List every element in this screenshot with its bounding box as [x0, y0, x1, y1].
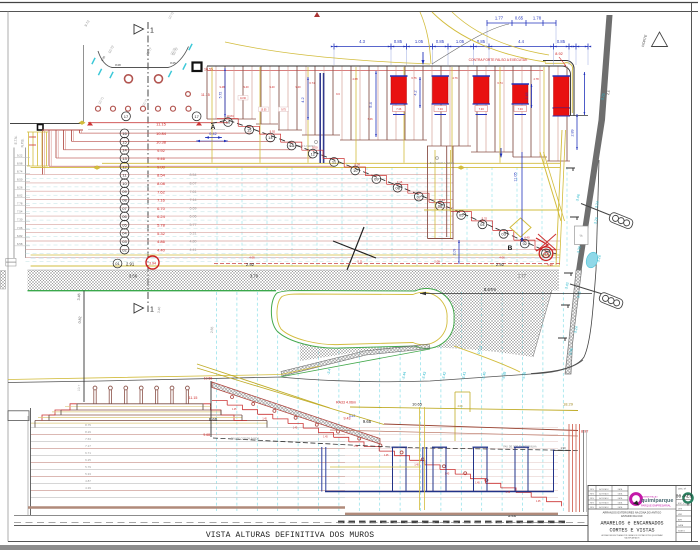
svg-text:07: 07 — [122, 206, 127, 211]
svg-text:CONTRA FORTE FALSO A EXECUTAR: CONTRA FORTE FALSO A EXECUTAR — [469, 58, 528, 62]
svg-text:4.86: 4.86 — [157, 239, 166, 244]
svg-text:7.30: 7.30 — [17, 218, 23, 222]
svg-text:8.54: 8.54 — [157, 173, 166, 178]
svg-text:03: 03 — [501, 232, 506, 237]
svg-text:ALTERADO: ALTERADO — [599, 501, 609, 504]
svg-text:8.02: 8.02 — [17, 194, 23, 198]
svg-text:01: 01 — [115, 261, 120, 266]
svg-text:10: 10 — [353, 168, 358, 173]
svg-text:7.61: 7.61 — [190, 190, 197, 194]
svg-text:02: 02 — [122, 247, 127, 252]
svg-text:1.45: 1.45 — [414, 464, 419, 466]
svg-text:2.48: 2.48 — [525, 93, 529, 100]
svg-text:18.29: 18.29 — [563, 402, 574, 407]
svg-text:9.65: 9.65 — [209, 417, 218, 422]
svg-text:3.46: 3.46 — [157, 306, 162, 313]
svg-text:REV: REV — [590, 489, 595, 491]
svg-text:DATA: DATA — [618, 492, 623, 495]
svg-text:5.72: 5.72 — [219, 92, 223, 99]
svg-text:8.50: 8.50 — [17, 177, 23, 181]
svg-text:6.82: 6.82 — [17, 234, 23, 238]
svg-text:1.45: 1.45 — [384, 455, 389, 457]
svg-text:4.68: 4.68 — [352, 77, 358, 81]
svg-text:4.05: 4.05 — [249, 256, 255, 260]
svg-text:8.08: 8.08 — [115, 63, 121, 67]
svg-text:6.58: 6.58 — [17, 242, 23, 246]
svg-text:1.45: 1.45 — [506, 492, 511, 494]
svg-text:8.26: 8.26 — [17, 186, 23, 190]
svg-text:9.6: 9.6 — [336, 92, 340, 96]
svg-text:ALTERADO: ALTERADO — [599, 492, 609, 495]
svg-text:A: A — [211, 124, 216, 131]
svg-text:SUBST.: SUBST. — [678, 531, 685, 533]
svg-text:4.76: 4.76 — [452, 76, 458, 80]
svg-text:7.46: 7.46 — [367, 117, 373, 121]
svg-text:6.24: 6.24 — [157, 214, 166, 219]
svg-text:1.05: 1.05 — [415, 39, 424, 44]
svg-text:6.71: 6.71 — [85, 451, 91, 455]
svg-text:9.68: 9.68 — [203, 433, 210, 437]
svg-text:12: 12 — [122, 164, 127, 169]
svg-text:13: 13 — [289, 143, 294, 148]
svg-text:VISTA ALTURAS DEFINITIVA DOS M: VISTA ALTURAS DEFINITIVA DOS MUROS — [206, 531, 374, 540]
svg-text:1.45: 1.45 — [536, 501, 541, 503]
svg-text:9.92: 9.92 — [157, 148, 166, 153]
svg-text:B: B — [687, 503, 689, 507]
svg-text:ALTERADO: ALTERADO — [599, 506, 609, 509]
svg-text:06: 06 — [122, 214, 127, 219]
svg-text:03: 03 — [122, 239, 127, 244]
svg-text:9.40: 9.40 — [295, 85, 301, 89]
svg-text:10: 10 — [122, 181, 127, 186]
svg-text:E.T.N.: E.T.N. — [14, 136, 18, 145]
svg-text:0.85: 0.85 — [557, 39, 566, 44]
svg-text:1.78: 1.78 — [533, 16, 542, 21]
svg-text:8.75: 8.75 — [85, 423, 91, 427]
svg-text:10.60: 10.60 — [240, 98, 246, 100]
svg-text:DES. Nº: DES. Nº — [678, 488, 686, 491]
svg-text:5.11: 5.11 — [357, 260, 363, 264]
svg-text:9.40: 9.40 — [243, 85, 249, 89]
svg-text:ALTERADO: ALTERADO — [599, 488, 609, 491]
svg-text:ARRANJOS EXTERIORES NA ZONA DO: ARRANJOS EXTERIORES NA ZONA DO ANTIGO — [603, 511, 662, 515]
svg-text:10.58: 10.58 — [204, 377, 213, 381]
svg-text:9.00: 9.00 — [157, 164, 166, 169]
svg-text:10.55: 10.55 — [261, 110, 267, 112]
svg-text:09: 09 — [122, 189, 127, 194]
svg-text:8.08: 8.08 — [157, 181, 166, 186]
svg-text:9.65: 9.65 — [363, 419, 372, 424]
svg-text:2.89: 2.89 — [571, 130, 575, 137]
svg-text:1.45: 1.45 — [293, 428, 298, 430]
svg-text:9.40: 9.40 — [269, 85, 275, 89]
svg-text:7.17: 7.17 — [85, 444, 91, 448]
svg-text:7.78: 7.78 — [17, 202, 23, 206]
svg-text:8.92: 8.92 — [555, 52, 562, 56]
svg-text:4.06: 4.06 — [457, 404, 463, 408]
svg-text:7.46: 7.46 — [438, 107, 444, 111]
svg-text:2.55: 2.55 — [210, 326, 215, 333]
svg-text:RA33 4.06m: RA33 4.06m — [336, 401, 356, 405]
svg-text:7.54: 7.54 — [17, 210, 23, 214]
svg-text:17: 17 — [124, 114, 129, 119]
svg-text:5.78: 5.78 — [157, 223, 166, 228]
svg-text:5.33: 5.33 — [85, 472, 91, 476]
svg-text:DATA: DATA — [618, 501, 623, 504]
svg-text:7.63: 7.63 — [85, 437, 91, 441]
svg-text:3.94: 3.94 — [149, 262, 156, 266]
svg-text:7.06: 7.06 — [17, 226, 23, 230]
svg-text:1.90: 1.90 — [560, 446, 566, 450]
svg-text:0.82: 0.82 — [78, 316, 83, 323]
svg-text:10.38: 10.38 — [156, 140, 167, 145]
svg-text:6.06: 6.06 — [190, 215, 197, 219]
svg-text:PAV. DE COR EM BANDA: PAV. DE COR EM BANDA — [231, 438, 259, 441]
svg-text:1: 1 — [150, 307, 154, 314]
svg-text:4.2: 4.2 — [300, 96, 305, 102]
svg-text:15: 15 — [122, 139, 127, 144]
svg-text:CORTES E VISTAS: CORTES E VISTAS — [609, 528, 654, 534]
svg-text:04: 04 — [122, 231, 127, 236]
svg-text:2.91: 2.91 — [126, 262, 135, 267]
svg-text:4.87: 4.87 — [85, 479, 91, 483]
svg-text:REV: REV — [590, 507, 595, 509]
svg-text:3.46: 3.46 — [77, 293, 82, 300]
svg-text:11.05: 11.05 — [514, 172, 518, 181]
svg-text:8.98: 8.98 — [17, 161, 23, 165]
svg-text:11.15: 11.15 — [201, 93, 210, 97]
svg-text:8.29: 8.29 — [85, 430, 91, 434]
svg-text:0.65: 0.65 — [515, 16, 524, 21]
svg-text:8.57m: 8.57m — [484, 287, 497, 292]
svg-text:6.74: 6.74 — [497, 81, 503, 85]
svg-text:DATA: DATA — [618, 506, 623, 509]
svg-text:1.77: 1.77 — [495, 16, 504, 21]
svg-text:0.85: 0.85 — [436, 39, 445, 44]
svg-text:DATA: DATA — [678, 524, 684, 527]
svg-text:5.4: 5.4 — [368, 101, 373, 107]
svg-text:16: 16 — [122, 131, 127, 136]
svg-text:13: 13 — [122, 156, 127, 161]
svg-text:1.05: 1.05 — [456, 39, 465, 44]
svg-text:4.06: 4.06 — [499, 256, 505, 260]
svg-text:0.42: 0.42 — [209, 132, 216, 136]
svg-text:2.92: 2.92 — [246, 262, 255, 267]
svg-text:11.15: 11.15 — [156, 121, 166, 126]
svg-text:PARQUE EMPRESARIAL: PARQUE EMPRESARIAL — [641, 504, 671, 508]
svg-text:REV: REV — [590, 498, 595, 500]
svg-text:4.3: 4.3 — [359, 39, 365, 44]
svg-text:N.P.B.: N.P.B. — [21, 138, 25, 147]
svg-text:16: 16 — [226, 120, 231, 125]
svg-text:1: 1 — [150, 28, 154, 35]
svg-text:10.7: 10.7 — [77, 384, 82, 391]
svg-text:BALIZADOR A FERRO: BALIZADOR A FERRO — [430, 162, 455, 165]
svg-text:14: 14 — [268, 135, 273, 140]
svg-text:7.14: 7.14 — [190, 198, 197, 202]
svg-text:1.45: 1.45 — [232, 409, 237, 411]
svg-text:06: 06 — [438, 203, 443, 208]
svg-text:8.97: 8.97 — [581, 430, 588, 434]
svg-text:5.32: 5.32 — [157, 231, 166, 236]
svg-text:10.65: 10.65 — [412, 402, 423, 407]
svg-text:09: 09 — [374, 177, 379, 182]
svg-text:REV: REV — [590, 493, 595, 495]
svg-text:R: R — [545, 254, 547, 258]
svg-text:%: % — [580, 234, 583, 238]
svg-text:4.40: 4.40 — [157, 247, 166, 252]
svg-text:17: 17 — [194, 114, 199, 119]
svg-text:2.08: 2.08 — [434, 260, 440, 264]
svg-text:1.45: 1.45 — [475, 483, 480, 485]
svg-text:3.56: 3.56 — [129, 274, 138, 279]
svg-text:B: B — [508, 245, 513, 252]
svg-text:08: 08 — [122, 198, 127, 203]
svg-text:ESC 1/...: ESC 1/... — [678, 503, 686, 505]
svg-text:1.45: 1.45 — [262, 418, 267, 420]
svg-text:05: 05 — [459, 213, 464, 218]
svg-text:6.76: 6.76 — [411, 76, 417, 80]
svg-text:VER: VER — [678, 514, 683, 516]
svg-text:DES: DES — [678, 509, 683, 511]
svg-text:AMARELOS e ENCARNADOS: AMARELOS e ENCARNADOS — [600, 521, 663, 527]
svg-text:4.41: 4.41 — [190, 248, 197, 252]
svg-text:7.46: 7.46 — [479, 107, 485, 111]
svg-text:9.75: 9.75 — [281, 110, 286, 112]
svg-text:7.16: 7.16 — [157, 198, 166, 203]
svg-text:11.15: 11.15 — [189, 396, 198, 400]
svg-text:8.54: 8.54 — [190, 173, 197, 177]
svg-text:4.4: 4.4 — [518, 39, 524, 44]
svg-text:ESTADIO DA CUF: ESTADIO DA CUF — [621, 514, 643, 518]
svg-text:8.05: 8.05 — [170, 61, 176, 65]
svg-text:1.45: 1.45 — [445, 474, 450, 476]
svg-text:00-AE0: 00-AE0 — [676, 494, 693, 500]
svg-text:07: 07 — [417, 194, 422, 199]
svg-text:9.46: 9.46 — [157, 156, 166, 161]
svg-text:08: 08 — [395, 185, 400, 190]
svg-text:1.45: 1.45 — [323, 437, 328, 439]
svg-text:quimiparque: quimiparque — [641, 498, 673, 504]
svg-text:4.39: 4.39 — [85, 486, 91, 490]
svg-text:DATA: DATA — [618, 488, 623, 491]
svg-text:14: 14 — [122, 148, 127, 153]
svg-text:15: 15 — [247, 127, 252, 132]
svg-text:REV: REV — [590, 502, 595, 504]
svg-text:8.07: 8.07 — [190, 182, 197, 186]
svg-text:6.69: 6.69 — [190, 206, 197, 210]
svg-text:6.74: 6.74 — [309, 81, 315, 85]
svg-text:10.84: 10.84 — [156, 131, 167, 136]
svg-text:8.74: 8.74 — [17, 169, 23, 173]
svg-text:6.70: 6.70 — [157, 206, 166, 211]
svg-text:12: 12 — [311, 151, 316, 156]
svg-text:7.62: 7.62 — [157, 189, 166, 194]
svg-text:9.48: 9.48 — [219, 85, 225, 89]
svg-text:APR: APR — [678, 519, 683, 522]
svg-text:4.78: 4.78 — [533, 77, 539, 81]
svg-text:6.25: 6.25 — [85, 458, 91, 462]
svg-text:0.85: 0.85 — [394, 39, 403, 44]
svg-text:7.46: 7.46 — [396, 107, 402, 111]
svg-text:4.2: 4.2 — [414, 90, 418, 95]
svg-text:4.80: 4.80 — [190, 240, 197, 244]
svg-text:5.98: 5.98 — [547, 263, 553, 267]
svg-text:04: 04 — [480, 222, 485, 227]
svg-text:9.22: 9.22 — [17, 153, 23, 157]
svg-text:5.31: 5.31 — [190, 231, 197, 235]
svg-text:2.92: 2.92 — [496, 262, 505, 267]
svg-text:2.09: 2.09 — [453, 249, 457, 256]
svg-text:05: 05 — [122, 222, 127, 227]
svg-text:ALTERADO: ALTERADO — [599, 497, 609, 500]
svg-text:02: 02 — [523, 241, 528, 246]
svg-text:7.46: 7.46 — [518, 107, 524, 111]
svg-text:DATA: DATA — [618, 497, 623, 500]
svg-text:5.79: 5.79 — [85, 465, 91, 469]
svg-text:3.79: 3.79 — [250, 274, 259, 279]
svg-text:5.77: 5.77 — [190, 223, 197, 227]
svg-text:1.45: 1.45 — [354, 446, 359, 448]
